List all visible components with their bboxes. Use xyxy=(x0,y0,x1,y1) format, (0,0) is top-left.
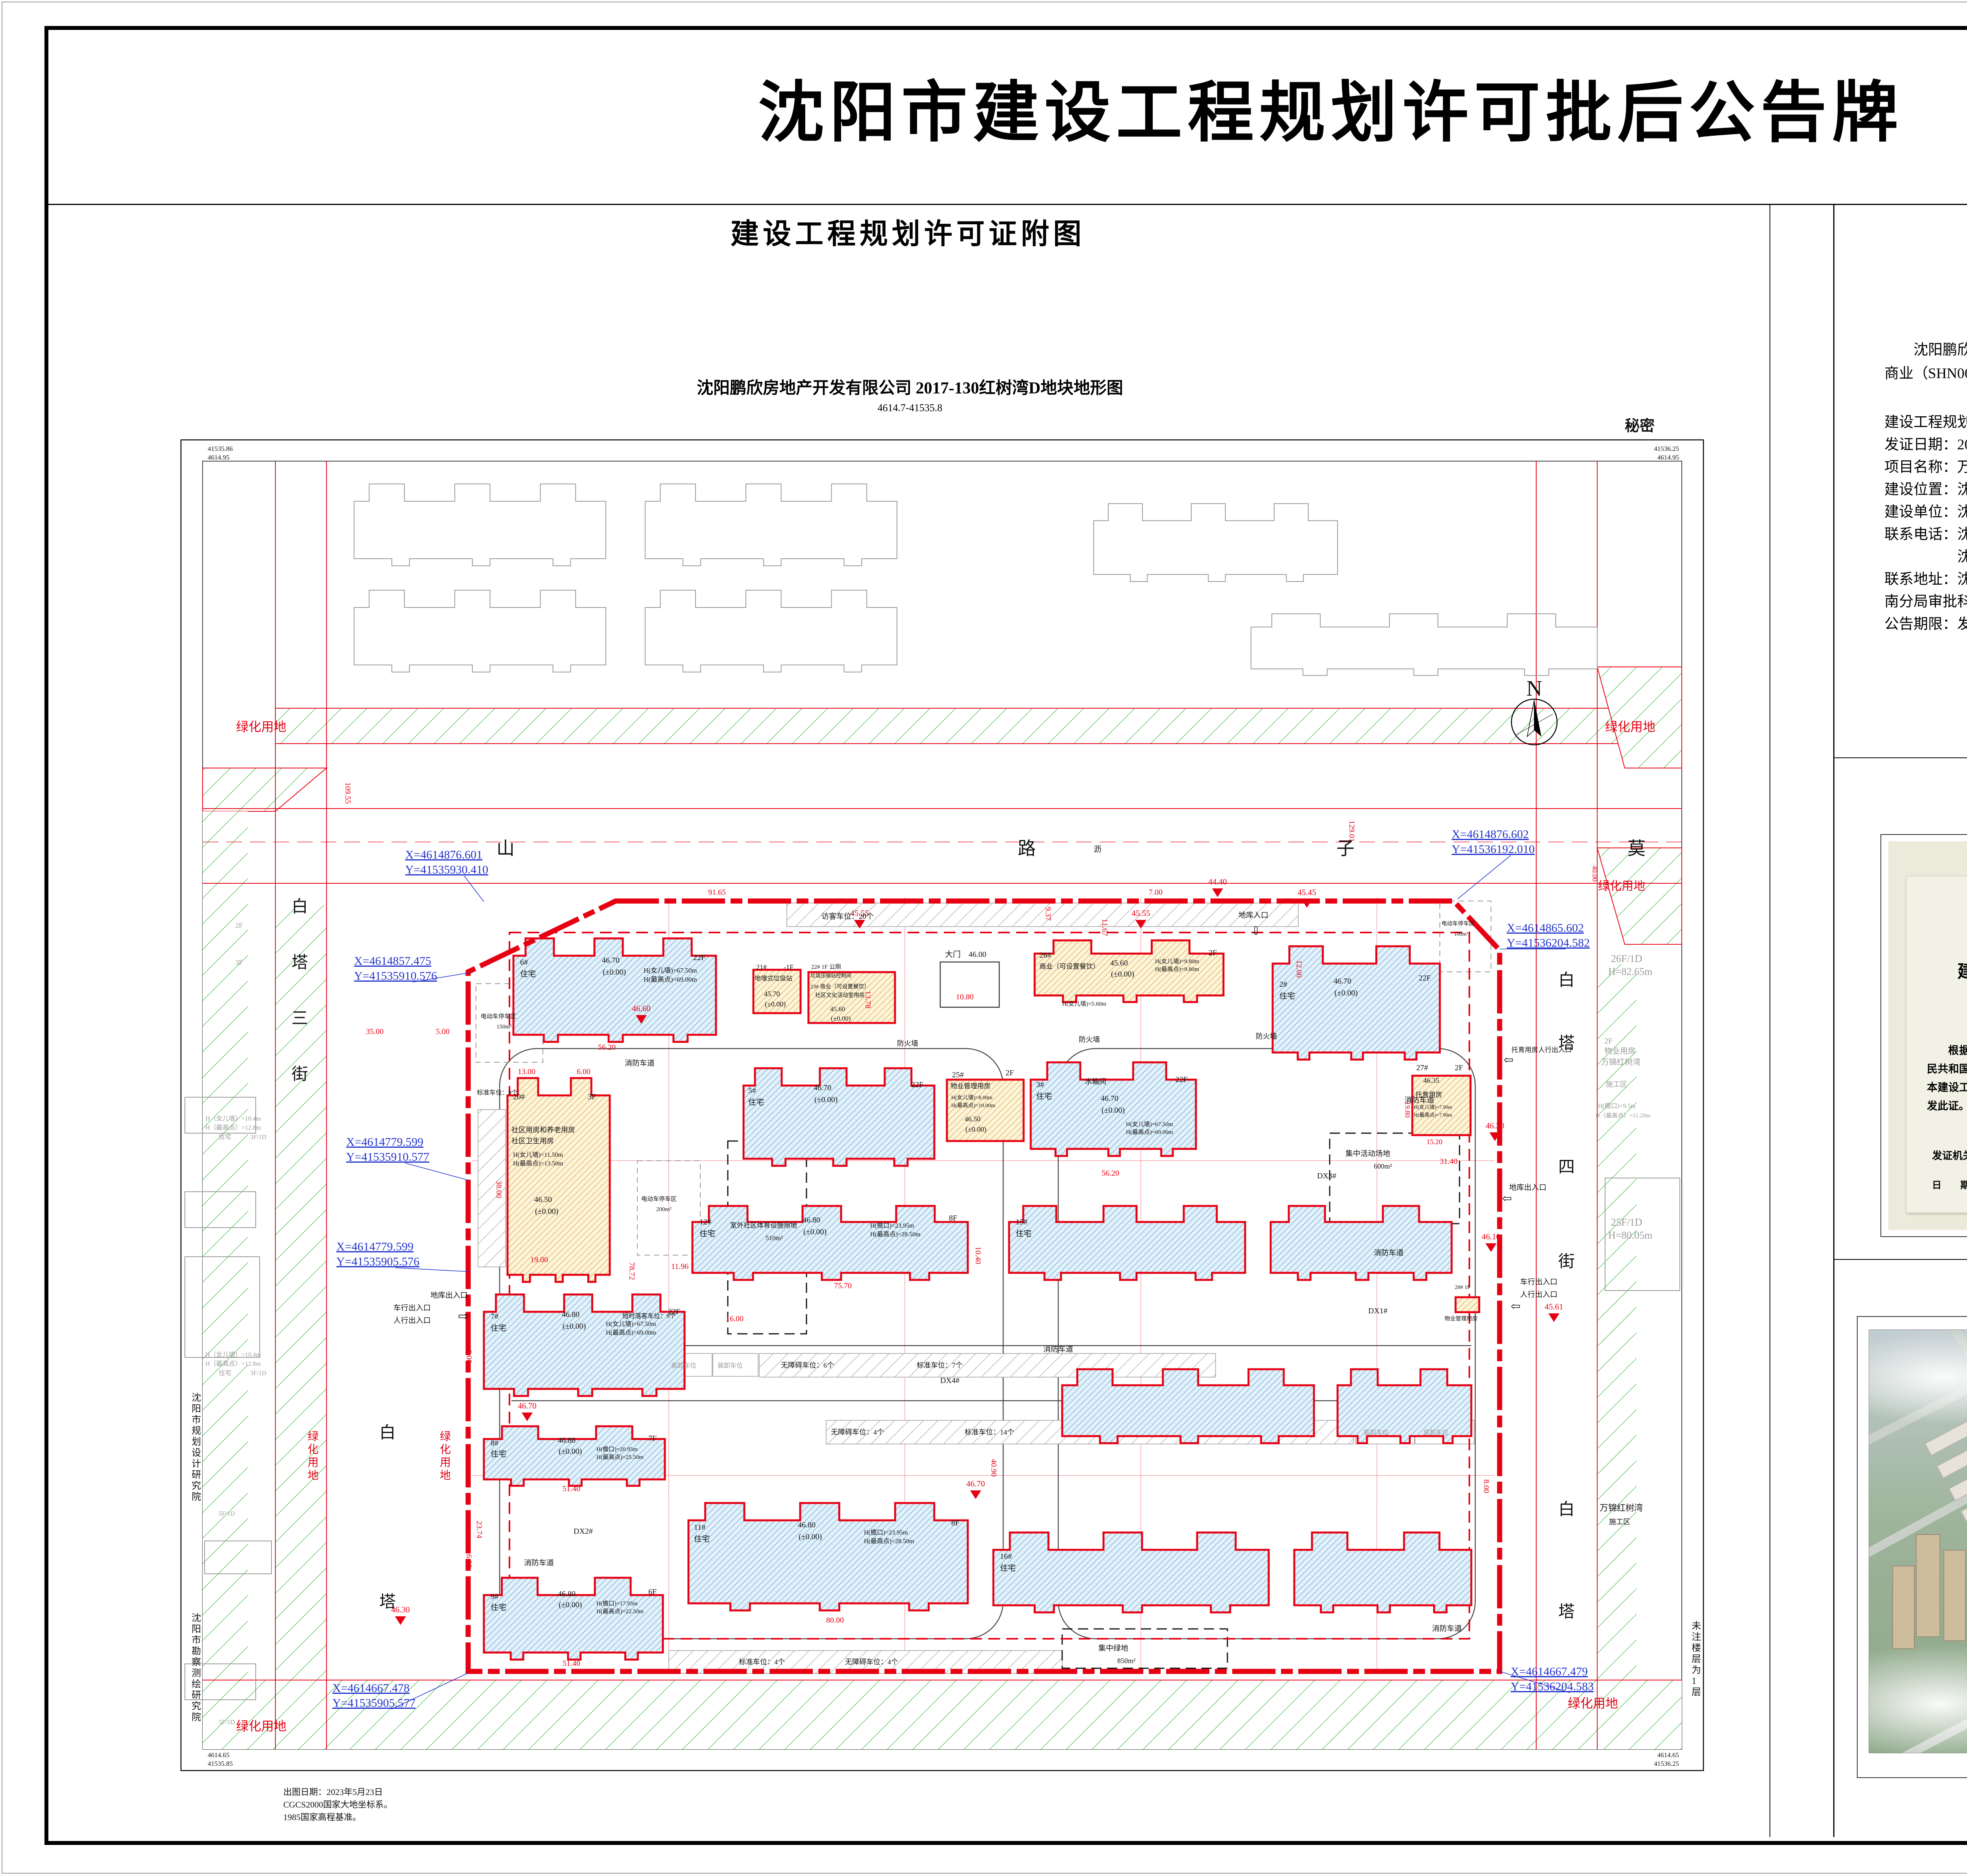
svg-text:X=4614779.599: X=4614779.599 xyxy=(336,1240,413,1253)
svg-text:沥: 沥 xyxy=(1094,845,1102,854)
svg-text:46.70: 46.70 xyxy=(1101,1094,1118,1103)
svg-text:850m²: 850m² xyxy=(1117,1657,1135,1665)
svg-text:200m²: 200m² xyxy=(656,1206,672,1213)
svg-text:H(女儿墙)=8.00m: H(女儿墙)=8.00m xyxy=(951,1094,993,1101)
site-building xyxy=(1271,1206,1452,1280)
svg-text:(±0.00): (±0.00) xyxy=(559,1601,582,1609)
svg-text:H(檐口)=9.5m: H(檐口)=9.5m xyxy=(1598,1102,1636,1110)
svg-text:消防车道: 消防车道 xyxy=(625,1059,655,1067)
svg-text:X=4614667.478: X=4614667.478 xyxy=(332,1682,410,1695)
svg-text:H(最高点)=22.50m: H(最高点)=22.50m xyxy=(596,1608,644,1615)
svg-text:H（女儿墙）=10.4m: H（女儿墙）=10.4m xyxy=(205,1351,261,1358)
svg-text:22F: 22F xyxy=(693,953,705,962)
context-building xyxy=(1251,614,1597,676)
svg-text:标准车位：14个: 标准车位：14个 xyxy=(965,1428,1014,1436)
svg-text:8.00: 8.00 xyxy=(1482,1479,1491,1493)
svg-text:1985国家高程基准。: 1985国家高程基准。 xyxy=(283,1812,361,1822)
svg-text:H(女儿墙)=67.50m: H(女儿墙)=67.50m xyxy=(1126,1121,1173,1128)
certificate-issuer: 发证机关 沈阳市自然资源局 xyxy=(1932,1148,1967,1162)
svg-text:未注楼层为1层: 未注楼层为1层 xyxy=(1692,1621,1701,1697)
svg-text:Y=41536204.582: Y=41536204.582 xyxy=(1507,936,1590,949)
svg-text:车行出入口: 车行出入口 xyxy=(393,1304,431,1312)
svg-text:H(女儿墙)=67.50m: H(女儿墙)=67.50m xyxy=(606,1320,656,1328)
svg-text:集中绿地: 集中绿地 xyxy=(1098,1644,1128,1653)
svg-text:装卸车位: 装卸车位 xyxy=(1423,1429,1448,1436)
svg-text:21#: 21# xyxy=(756,963,767,971)
context-building xyxy=(354,484,606,566)
svg-text:46.70: 46.70 xyxy=(518,1401,536,1411)
svg-text:16#: 16# xyxy=(1000,1552,1012,1561)
svg-text:80.00: 80.00 xyxy=(826,1616,844,1625)
svg-text:绿化用地: 绿化用地 xyxy=(1568,1696,1618,1710)
svg-text:46.35: 46.35 xyxy=(1423,1076,1439,1084)
svg-text:H(女儿墙)=5.60m: H(女儿墙)=5.60m xyxy=(1062,1000,1107,1007)
svg-text:H(檐口)=20.95m: H(檐口)=20.95m xyxy=(596,1446,638,1453)
announcement-intro-line: 商业（SHN06-01-35地块）项目规划许可批后公告 xyxy=(1884,362,1967,386)
announcement-line: 沈阳鹏欣房地产开发有限公司，024-31370909 xyxy=(1884,546,1967,568)
svg-text:DX3#: DX3# xyxy=(1317,1172,1336,1180)
svg-text:56.20: 56.20 xyxy=(1102,1169,1119,1178)
svg-text:(±0.00): (±0.00) xyxy=(1102,1106,1125,1115)
svg-text:3#: 3# xyxy=(1036,1080,1044,1089)
svg-text:45.45: 45.45 xyxy=(1297,888,1316,897)
announcement-intro: 沈阳鹏欣房地产开发有限公司位于沈阳市浑南区莫子山路179号的万锦红树湾居住、商业… xyxy=(1884,338,1967,386)
svg-text:(±0.00): (±0.00) xyxy=(563,1322,586,1331)
svg-text:11.67: 11.67 xyxy=(1100,919,1109,936)
svg-text:三: 三 xyxy=(292,1010,308,1028)
svg-text:⇩: ⇩ xyxy=(1251,925,1261,938)
svg-text:白: 白 xyxy=(292,898,308,916)
svg-text:8#: 8# xyxy=(491,1439,498,1448)
svg-text:6#: 6# xyxy=(520,958,528,967)
svg-text:(±0.00): (±0.00) xyxy=(803,1228,827,1236)
svg-text:46.80: 46.80 xyxy=(803,1216,820,1224)
svg-text:40.00: 40.00 xyxy=(1591,866,1599,882)
svg-text:X=4614857.475: X=4614857.475 xyxy=(354,955,431,968)
svg-text:46.20: 46.20 xyxy=(1485,1121,1504,1130)
svg-text:5#: 5# xyxy=(748,1086,756,1095)
svg-text:⇨: ⇨ xyxy=(458,1309,469,1323)
svg-text:防火墙: 防火墙 xyxy=(1256,1032,1277,1040)
svg-text:41535.85: 41535.85 xyxy=(208,1760,233,1767)
certificate-country: 中华人民共和国 xyxy=(1906,923,1967,941)
svg-text:X=4614876.601: X=4614876.601 xyxy=(405,848,482,861)
svg-text:街: 街 xyxy=(292,1065,308,1084)
svg-text:8F: 8F xyxy=(951,1519,960,1527)
svg-text:装卸车位: 装卸车位 xyxy=(1364,1429,1389,1436)
svg-text:万锦红树湾: 万锦红树湾 xyxy=(1601,1058,1640,1067)
svg-text:45.55: 45.55 xyxy=(1131,908,1150,918)
svg-text:集中活动场地: 集中活动场地 xyxy=(1345,1149,1390,1158)
announcement-lines: 建设工程规划许可证号：建字第2101122024GG0028465号发证日期：2… xyxy=(1884,411,1967,635)
svg-text:沈阳市勘察测绘研究院: 沈阳市勘察测绘研究院 xyxy=(192,1613,201,1723)
svg-text:无障碍车位：6个: 无障碍车位：6个 xyxy=(781,1361,834,1369)
svg-text:51.40: 51.40 xyxy=(563,1485,580,1493)
svg-text:26F/1D: 26F/1D xyxy=(1611,953,1642,964)
svg-text:物业管理用房: 物业管理用房 xyxy=(1445,1316,1478,1322)
svg-text:大门: 大门 xyxy=(945,950,961,959)
svg-text:28# 1F: 28# 1F xyxy=(1455,1285,1471,1291)
svg-text:(±0.00): (±0.00) xyxy=(535,1207,558,1216)
site-building xyxy=(692,1206,968,1280)
announcement-line: 联系地址：沈阳市浑南区全运路109号（创新天地H座9楼）沈阳市自然资源局浑 xyxy=(1884,568,1967,591)
svg-text:2F: 2F xyxy=(1604,1037,1613,1045)
svg-text:(±0.00): (±0.00) xyxy=(603,968,626,977)
svg-text:40.90: 40.90 xyxy=(989,1459,998,1477)
svg-text:100m²: 100m² xyxy=(1454,931,1468,937)
svg-text:6.00: 6.00 xyxy=(577,1067,590,1076)
svg-text:22F: 22F xyxy=(911,1080,923,1089)
svg-text:46.70: 46.70 xyxy=(602,956,620,965)
svg-text:住宅: 住宅 xyxy=(1036,1092,1052,1101)
svg-text:109.55: 109.55 xyxy=(343,782,352,804)
svg-text:短时落客车位：9个: 短时落客车位：9个 xyxy=(622,1313,676,1320)
svg-text:H（最高点）=11.20m: H（最高点）=11.20m xyxy=(1596,1112,1650,1119)
svg-text:标准车位：7个: 标准车位：7个 xyxy=(917,1361,963,1369)
announcement-footer-line: 沈阳市自然资源局 监制 xyxy=(1884,670,1967,692)
svg-text:塔: 塔 xyxy=(379,1593,396,1611)
svg-text:-1F: -1F xyxy=(784,963,793,971)
svg-text:46.80: 46.80 xyxy=(798,1521,816,1529)
announcement-line: 建设单位：沈阳鹏欣房地产开发有限公司 xyxy=(1884,501,1967,523)
svg-text:无障碍车位：4个: 无障碍车位：4个 xyxy=(831,1428,884,1436)
svg-text:22F: 22F xyxy=(1419,974,1431,982)
svg-text:防火墙: 防火墙 xyxy=(1079,1036,1100,1043)
svg-text:510m²: 510m² xyxy=(766,1234,783,1242)
certificate-title: 建设工程规划许可证 xyxy=(1906,957,1967,982)
svg-text:绿化用地: 绿化用地 xyxy=(236,1719,286,1733)
site-building xyxy=(993,1533,1269,1612)
svg-text:住宅: 住宅 xyxy=(219,1134,231,1141)
announcement-title: 公告信息 xyxy=(1833,252,1967,291)
svg-text:物业用房: 物业用房 xyxy=(1604,1047,1636,1056)
svg-text:Y=41535930.410: Y=41535930.410 xyxy=(405,863,488,876)
svg-text:住宅: 住宅 xyxy=(491,1324,506,1333)
svg-text:(±0.00): (±0.00) xyxy=(965,1125,986,1134)
svg-text:46.10: 46.10 xyxy=(1482,1232,1500,1241)
svg-text:施工区: 施工区 xyxy=(1609,1518,1630,1526)
svg-text:Y=41536204.583: Y=41536204.583 xyxy=(1511,1680,1594,1693)
site-building xyxy=(1294,1533,1471,1612)
svg-text:塔: 塔 xyxy=(1558,1603,1575,1621)
svg-text:消防车道: 消防车道 xyxy=(1432,1624,1462,1633)
svg-text:25F/1D: 25F/1D xyxy=(1611,1217,1642,1228)
aerial-photo-frame xyxy=(1857,1316,1967,1778)
svg-text:塔: 塔 xyxy=(292,954,308,972)
aerial-rendering xyxy=(1869,1329,1967,1753)
svg-text:施工区: 施工区 xyxy=(1606,1080,1627,1088)
svg-text:H(最高点)=13.50m: H(最高点)=13.50m xyxy=(513,1160,563,1167)
svg-text:路: 路 xyxy=(1018,838,1036,859)
svg-text:(±0.00): (±0.00) xyxy=(831,1015,851,1022)
svg-text:(±0.00): (±0.00) xyxy=(1334,989,1358,997)
svg-text:56.20: 56.20 xyxy=(598,1043,616,1052)
site-building xyxy=(1338,1369,1471,1443)
svg-text:12.00: 12.00 xyxy=(1295,960,1303,978)
svg-text:2F: 2F xyxy=(1209,949,1217,957)
svg-text:四: 四 xyxy=(1558,1158,1575,1176)
svg-text:地库入口: 地库入口 xyxy=(1238,911,1268,920)
svg-text:7#: 7# xyxy=(491,1312,498,1321)
context-building xyxy=(645,590,897,672)
svg-text:3F: 3F xyxy=(588,1093,596,1101)
svg-text:7F: 7F xyxy=(648,1434,657,1443)
permit-certificate-photo: NO. 中华人民共和国 建设工程规划许可证 建字第2101122024GG002… xyxy=(1880,834,1967,1237)
announcement-line: 项目名称：万锦红树湾居住、商业（SHN06-01-35地块）项目 xyxy=(1884,456,1967,478)
svg-text:26#: 26# xyxy=(1039,951,1051,960)
svg-text:10.80: 10.80 xyxy=(956,993,974,1001)
svg-text:住宅: 住宅 xyxy=(219,1370,231,1377)
svg-text:N: N xyxy=(1526,676,1542,701)
svg-text:7.00: 7.00 xyxy=(1149,888,1162,897)
svg-text:住宅: 住宅 xyxy=(1000,1564,1016,1573)
svg-text:10.40: 10.40 xyxy=(974,1246,982,1264)
svg-text:2F: 2F xyxy=(1006,1069,1014,1077)
svg-text:⇦: ⇦ xyxy=(1511,1300,1520,1313)
svg-text:地库出入口: 地库出入口 xyxy=(1509,1183,1546,1192)
svg-text:H(檐口)=17.95m: H(檐口)=17.95m xyxy=(596,1600,638,1607)
svg-text:46.70: 46.70 xyxy=(1334,977,1351,986)
svg-text:9#: 9# xyxy=(491,1592,498,1601)
site-plan-drawing: 46.6045.5545.5545.4544.4046.2046.1045.61… xyxy=(0,0,1967,1876)
svg-text:91.65: 91.65 xyxy=(708,888,726,897)
certificate-date: 日 期 2024年04月29日 xyxy=(1932,1177,1967,1191)
svg-text:46.00: 46.00 xyxy=(969,950,986,959)
svg-text:22# 1F 公厕: 22# 1F 公厕 xyxy=(811,964,841,970)
svg-text:9.37: 9.37 xyxy=(1044,907,1052,921)
svg-text:2F: 2F xyxy=(235,921,243,929)
announcement-line: 联系电话：沈阳市自然资源局,024-24222956 xyxy=(1884,523,1967,546)
svg-text:X=4614876.602: X=4614876.602 xyxy=(1452,828,1529,841)
svg-text:3F/1D: 3F/1D xyxy=(250,1370,266,1377)
svg-text:地库出入口: 地库出入口 xyxy=(430,1291,468,1300)
svg-text:人行出入口: 人行出入口 xyxy=(393,1316,431,1325)
svg-text:H(檐口)=23.95m: H(檐口)=23.95m xyxy=(864,1529,908,1536)
svg-text:H（最高点）=12.8m: H（最高点）=12.8m xyxy=(205,1124,261,1131)
announcement-line: 发证日期：2024.04.29 xyxy=(1884,434,1967,456)
svg-text:5F/1D: 5F/1D xyxy=(219,1510,235,1517)
svg-text:地埋式垃圾站: 地埋式垃圾站 xyxy=(755,975,792,982)
svg-text:H(最高点)=69.00m: H(最高点)=69.00m xyxy=(644,976,697,983)
svg-text:25#: 25# xyxy=(952,1071,964,1079)
aerial-section-title: 鸟瞰图 xyxy=(1833,1270,1967,1310)
svg-text:H(最高点)=10.00m: H(最高点)=10.00m xyxy=(951,1102,995,1109)
svg-text:物业管理用房: 物业管理用房 xyxy=(950,1082,991,1090)
svg-text:秘密: 秘密 xyxy=(1625,418,1655,434)
svg-text:51.40: 51.40 xyxy=(563,1659,580,1668)
svg-text:白: 白 xyxy=(1558,971,1575,990)
svg-text:X=4614779.599: X=4614779.599 xyxy=(346,1136,423,1148)
announcement-line: 公告期限：发证日期起至规划核实合格止 xyxy=(1884,613,1967,635)
svg-text:X=4614865.602: X=4614865.602 xyxy=(1507,921,1584,934)
svg-text:住宅: 住宅 xyxy=(520,969,536,979)
svg-text:35.00: 35.00 xyxy=(366,1027,384,1036)
announcement-line: 南分局审批科（以邮戳日期为准），邮编：100179 xyxy=(1884,591,1967,613)
svg-text:78.72: 78.72 xyxy=(627,1262,636,1280)
svg-text:H（最高点）=12.8m: H（最高点）=12.8m xyxy=(205,1360,261,1367)
certificate-left-page: 中华人民共和国 建设工程规划许可证 建字第2101122024GG0028465… xyxy=(1906,876,1967,1213)
svg-text:H(檐口)=23.95m: H(檐口)=23.95m xyxy=(870,1222,914,1229)
svg-text:6.00: 6.00 xyxy=(465,1350,473,1363)
svg-text:H=80.05m: H=80.05m xyxy=(1608,1230,1652,1241)
svg-text:社区用房和养老用房: 社区用房和养老用房 xyxy=(511,1126,575,1134)
svg-text:11.96: 11.96 xyxy=(671,1262,688,1271)
svg-text:社区卫生用房: 社区卫生用房 xyxy=(511,1137,554,1145)
svg-text:消防车道: 消防车道 xyxy=(1374,1248,1404,1257)
svg-text:沈阳市规划设计研究院: 沈阳市规划设计研究院 xyxy=(192,1392,201,1502)
svg-text:46.70: 46.70 xyxy=(814,1084,831,1092)
svg-text:(±0.00): (±0.00) xyxy=(765,1000,786,1008)
svg-text:万锦红树湾: 万锦红树湾 xyxy=(1600,1503,1643,1513)
svg-text:访客车位：20个: 访客车位：20个 xyxy=(821,912,874,921)
svg-text:商业（可设置餐饮）: 商业（可设置餐饮） xyxy=(1039,963,1100,970)
svg-text:46.50: 46.50 xyxy=(534,1195,552,1204)
svg-text:绿化用地: 绿化用地 xyxy=(1598,880,1645,893)
svg-text:电动车停车区: 电动车停车区 xyxy=(641,1196,677,1202)
announcement-board: 沈阳市建设工程规划许可批后公告牌 建设工程规划许可证附图 沈阳鹏欣房地产开发有限… xyxy=(0,0,1967,1876)
svg-text:H(最高点)=28.50m: H(最高点)=28.50m xyxy=(870,1231,921,1238)
svg-text:装卸车位: 装卸车位 xyxy=(671,1362,696,1369)
svg-text:街: 街 xyxy=(1558,1253,1575,1271)
svg-text:46.70: 46.70 xyxy=(966,1479,985,1488)
svg-text:22F: 22F xyxy=(1175,1075,1188,1084)
svg-text:(±0.00): (±0.00) xyxy=(799,1533,822,1541)
svg-text:托育用房人行出入口: 托育用房人行出入口 xyxy=(1511,1046,1572,1054)
svg-text:2#: 2# xyxy=(1279,980,1287,989)
svg-text:46.60: 46.60 xyxy=(632,1004,650,1013)
certificate-serial: 建字第2101122024GG0028465号 xyxy=(1906,1002,1967,1015)
site-building xyxy=(484,1294,685,1396)
announcement-line: 建设位置：沈阳市浑南区莫子山路179号 xyxy=(1884,478,1967,501)
aerial-scene xyxy=(1869,1330,1967,1753)
svg-text:H(女儿墙)=11.50m: H(女儿墙)=11.50m xyxy=(513,1151,563,1158)
announcement-intro-line: 沈阳鹏欣房地产开发有限公司位于沈阳市浑南区莫子山路179号的万锦红树湾居住、 xyxy=(1884,338,1967,362)
svg-text:H=82.65m: H=82.65m xyxy=(1608,966,1652,977)
announcement-footer: 沈阳鹏欣房地产开发有限公司沈阳市自然资源局 监制2024年5月8日 xyxy=(1884,647,1967,715)
svg-text:45.70: 45.70 xyxy=(764,990,780,998)
context-building xyxy=(1094,504,1338,582)
svg-text:H(最高点)=69.00m: H(最高点)=69.00m xyxy=(1126,1129,1173,1136)
svg-text:5F/1D: 5F/1D xyxy=(219,1719,235,1726)
svg-text:消防车道: 消防车道 xyxy=(1404,1096,1434,1104)
permit-section-title: 建设工程规划许可证 xyxy=(1833,768,1967,808)
svg-text:H(最高点)=28.50m: H(最高点)=28.50m xyxy=(864,1538,914,1545)
svg-text:4614.65: 4614.65 xyxy=(1657,1751,1679,1759)
svg-text:31.40: 31.40 xyxy=(1440,1157,1458,1166)
svg-text:75.70: 75.70 xyxy=(834,1281,852,1290)
svg-text:白: 白 xyxy=(1558,1501,1575,1519)
svg-text:13.78: 13.78 xyxy=(864,991,872,1008)
certificate-scan: NO. 中华人民共和国 建设工程规划许可证 建字第2101122024GG002… xyxy=(1888,841,1967,1230)
site-building xyxy=(513,938,716,1042)
svg-text:电动车停车区: 电动车停车区 xyxy=(1441,920,1474,927)
svg-text:防火墙: 防火墙 xyxy=(897,1040,918,1047)
svg-text:(±0.00): (±0.00) xyxy=(814,1095,838,1104)
svg-text:H(女儿墙)=67.50m: H(女儿墙)=67.50m xyxy=(644,967,697,974)
svg-text:46.50: 46.50 xyxy=(965,1115,981,1123)
svg-text:白: 白 xyxy=(379,1424,396,1442)
svg-text:H(最高点)=25.50m: H(最高点)=25.50m xyxy=(596,1454,644,1461)
svg-text:6.00: 6.00 xyxy=(465,1554,473,1568)
svg-text:8F: 8F xyxy=(949,1214,957,1222)
svg-text:3F/1D: 3F/1D xyxy=(250,1134,266,1141)
svg-text:DX1#: DX1# xyxy=(1368,1307,1388,1315)
svg-text:社区文化活动室用房: 社区文化活动室用房 xyxy=(815,992,865,999)
svg-text:45.61: 45.61 xyxy=(1544,1302,1563,1311)
site-building xyxy=(744,1068,934,1166)
svg-text:车行出入口: 车行出入口 xyxy=(1520,1278,1557,1286)
svg-text:Y=41536192.010: Y=41536192.010 xyxy=(1452,843,1535,856)
svg-text:38.00: 38.00 xyxy=(495,1180,503,1198)
svg-text:Y=41535905.577: Y=41535905.577 xyxy=(332,1697,415,1710)
svg-text:2F: 2F xyxy=(1455,1064,1463,1072)
svg-text:H(女儿墙)=9.80m: H(女儿墙)=9.80m xyxy=(1155,958,1199,965)
site-building xyxy=(1009,1206,1245,1280)
svg-text:莫: 莫 xyxy=(1627,838,1646,859)
svg-text:室外社区体育设施用地: 室外社区体育设施用地 xyxy=(730,1222,797,1229)
svg-text:标准车位：9个: 标准车位：9个 xyxy=(477,1089,518,1096)
svg-text:15#: 15# xyxy=(1016,1218,1028,1226)
svg-text:45.60: 45.60 xyxy=(830,1005,845,1013)
svg-text:19.00: 19.00 xyxy=(530,1256,548,1264)
svg-text:15.20: 15.20 xyxy=(1426,1138,1443,1146)
svg-text:住宅: 住宅 xyxy=(1016,1229,1031,1238)
svg-text:⇦: ⇦ xyxy=(1502,1192,1512,1205)
svg-text:消防车道: 消防车道 xyxy=(524,1558,554,1567)
svg-text:3F: 3F xyxy=(235,958,243,966)
svg-text:出图日期：2023年5月23日: 出图日期：2023年5月23日 xyxy=(283,1787,383,1797)
svg-text:无障碍车位：4个: 无障碍车位：4个 xyxy=(845,1658,898,1666)
svg-text:住宅: 住宅 xyxy=(1279,992,1295,1001)
announcement-line: 建设工程规划许可证号：建字第2101122024GG0028465号 xyxy=(1884,411,1967,434)
svg-text:(±0.00): (±0.00) xyxy=(559,1447,582,1456)
svg-text:H(最高点)=7.90m: H(最高点)=7.90m xyxy=(1414,1112,1452,1118)
certificate-body: 根据《中华人民共和国土地管理法》《中华人民共和国城乡规划法》和国家有关规定，经审… xyxy=(1927,1041,1967,1115)
svg-text:45.60: 45.60 xyxy=(1110,959,1128,968)
svg-text:⇦: ⇦ xyxy=(1504,1054,1513,1067)
svg-text:H(最高点)=9.80m: H(最高点)=9.80m xyxy=(1155,966,1199,973)
svg-text:12#: 12# xyxy=(699,1218,711,1226)
announcement-footer-line: 2024年5月8日 xyxy=(1884,692,1967,715)
svg-text:4614.95: 4614.95 xyxy=(208,454,229,461)
svg-text:住宅: 住宅 xyxy=(699,1229,715,1238)
svg-text:X=4614667.479: X=4614667.479 xyxy=(1511,1665,1588,1678)
svg-text:600m²: 600m² xyxy=(1374,1162,1392,1170)
svg-text:Y=41535905.576: Y=41535905.576 xyxy=(336,1255,419,1268)
svg-text:11#: 11# xyxy=(694,1523,705,1532)
svg-text:消防车道: 消防车道 xyxy=(1043,1345,1073,1353)
svg-text:27#: 27# xyxy=(1416,1064,1428,1072)
svg-text:住宅: 住宅 xyxy=(748,1098,764,1107)
svg-text:6F: 6F xyxy=(648,1588,657,1596)
svg-text:129.01: 129.01 xyxy=(1347,820,1356,842)
svg-text:23.74: 23.74 xyxy=(475,1521,483,1538)
svg-text:H(女儿墙)=7.90m: H(女儿墙)=7.90m xyxy=(1414,1104,1452,1110)
svg-text:DX4#: DX4# xyxy=(940,1376,960,1385)
svg-text:41536.25: 41536.25 xyxy=(1654,445,1679,452)
svg-text:23# 商业（可设置餐饮）: 23# 商业（可设置餐饮） xyxy=(810,984,870,990)
site-building xyxy=(1456,1297,1479,1312)
svg-text:41535.86: 41535.86 xyxy=(208,445,233,452)
svg-text:住宅: 住宅 xyxy=(694,1534,710,1544)
svg-text:Y=41535910.577: Y=41535910.577 xyxy=(346,1150,429,1163)
svg-text:H（女儿墙）=10.4m: H（女儿墙）=10.4m xyxy=(205,1115,261,1122)
site-building xyxy=(688,1503,968,1610)
svg-text:44.40: 44.40 xyxy=(1208,877,1227,886)
svg-text:4614.95: 4614.95 xyxy=(1657,454,1679,461)
svg-text:垃圾压缩站控制间: 垃圾压缩站控制间 xyxy=(810,973,851,979)
context-building xyxy=(645,484,897,566)
